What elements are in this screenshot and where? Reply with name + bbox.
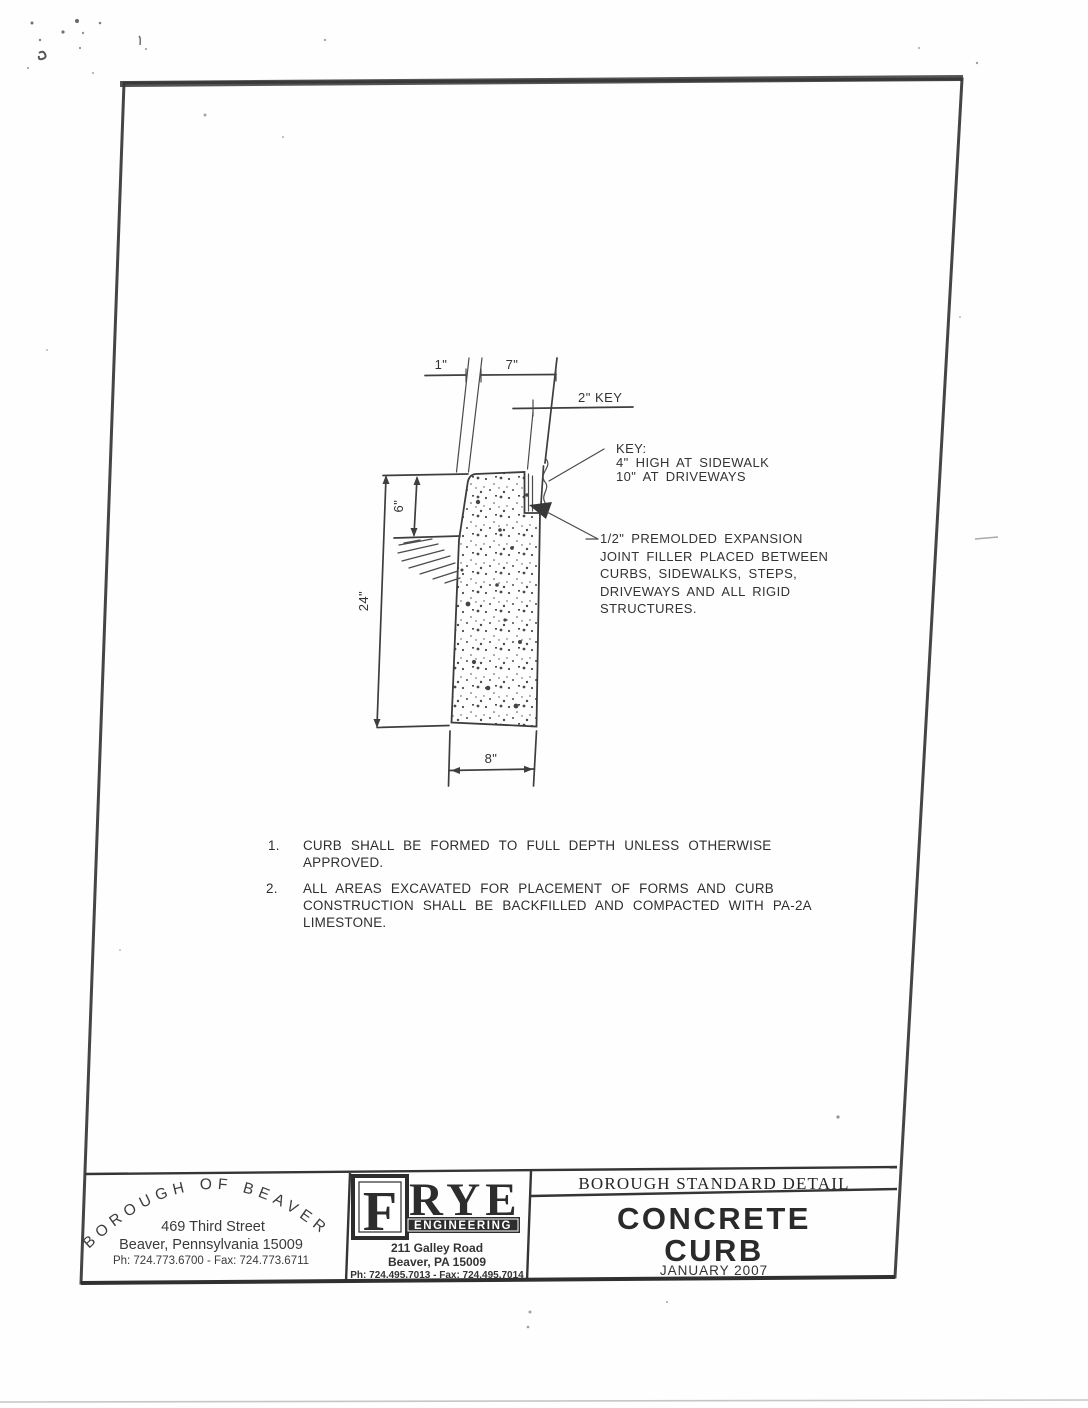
borough-address1: 469 Third Street [161, 1219, 265, 1235]
dim-batter-label: 1" [435, 357, 448, 372]
frye-address2: Beaver, PA 15009 [388, 1255, 486, 1269]
note2-line2: CONSTRUCTION SHALL BE BACKFILLED AND COM… [303, 898, 812, 913]
joint-note-line4: DRIVEWAYS AND ALL RIGID [600, 584, 790, 599]
dim-top-width-label: 7" [506, 357, 519, 372]
frye-phone: Ph: 724.495.7013 - Fax: 724.495.7014 [350, 1270, 524, 1281]
standard-header: BOROUGH STANDARD DETAIL [578, 1174, 849, 1193]
note1-line1: CURB SHALL BE FORMED TO FULL DEPTH UNLES… [303, 838, 771, 853]
joint-note-line5: STRUCTURES. [600, 601, 697, 616]
dim-depth-label: 24" [356, 591, 371, 612]
sheet-title-line1: CONCRETE [617, 1201, 811, 1236]
note1-line2: APPROVED. [303, 855, 383, 870]
joint-note-line3: CURBS, SIDEWALKS, STEPS, [600, 566, 797, 581]
dim-reveal-label: 6" [391, 500, 406, 513]
note2-line1: ALL AREAS EXCAVATED FOR PLACEMENT OF FOR… [303, 881, 774, 896]
frye-tagline: ENGINEERING [414, 1220, 512, 1232]
scanned-page: 1" 7" 2" KEY KEY: 4" HIGH AT SIDEWALK 10… [0, 0, 1088, 1408]
joint-note-line2: JOINT FILLER PLACED BETWEEN [600, 549, 828, 564]
frye-address1: 211 Galley Road [391, 1241, 483, 1255]
dim-base-label: 8" [485, 751, 498, 766]
borough-address2: Beaver, Pennsylvania 15009 [119, 1237, 303, 1253]
note1-number: 1. [268, 838, 280, 853]
note2-number: 2. [266, 881, 278, 896]
sheet-svg: 1" 7" 2" KEY KEY: 4" HIGH AT SIDEWALK 10… [0, 0, 1088, 1408]
sheet-date: JANUARY 2007 [660, 1263, 768, 1278]
frye-initial: F [363, 1181, 397, 1243]
joint-note-line1: 1/2" PREMOLDED EXPANSION [600, 531, 803, 546]
dim-top-width-line [481, 375, 556, 376]
dim-key-label: 2" KEY [578, 390, 622, 405]
borough-phone: Ph: 724.773.6700 - Fax: 724.773.6711 [113, 1255, 309, 1267]
key-note-line2: 4" HIGH AT SIDEWALK [616, 455, 769, 470]
dim-batter-line [425, 375, 466, 376]
key-note-line3: 10" AT DRIVEWAYS [616, 469, 746, 484]
note2-line3: LIMESTONE. [303, 915, 386, 930]
key-note-line1: KEY: [616, 441, 647, 456]
